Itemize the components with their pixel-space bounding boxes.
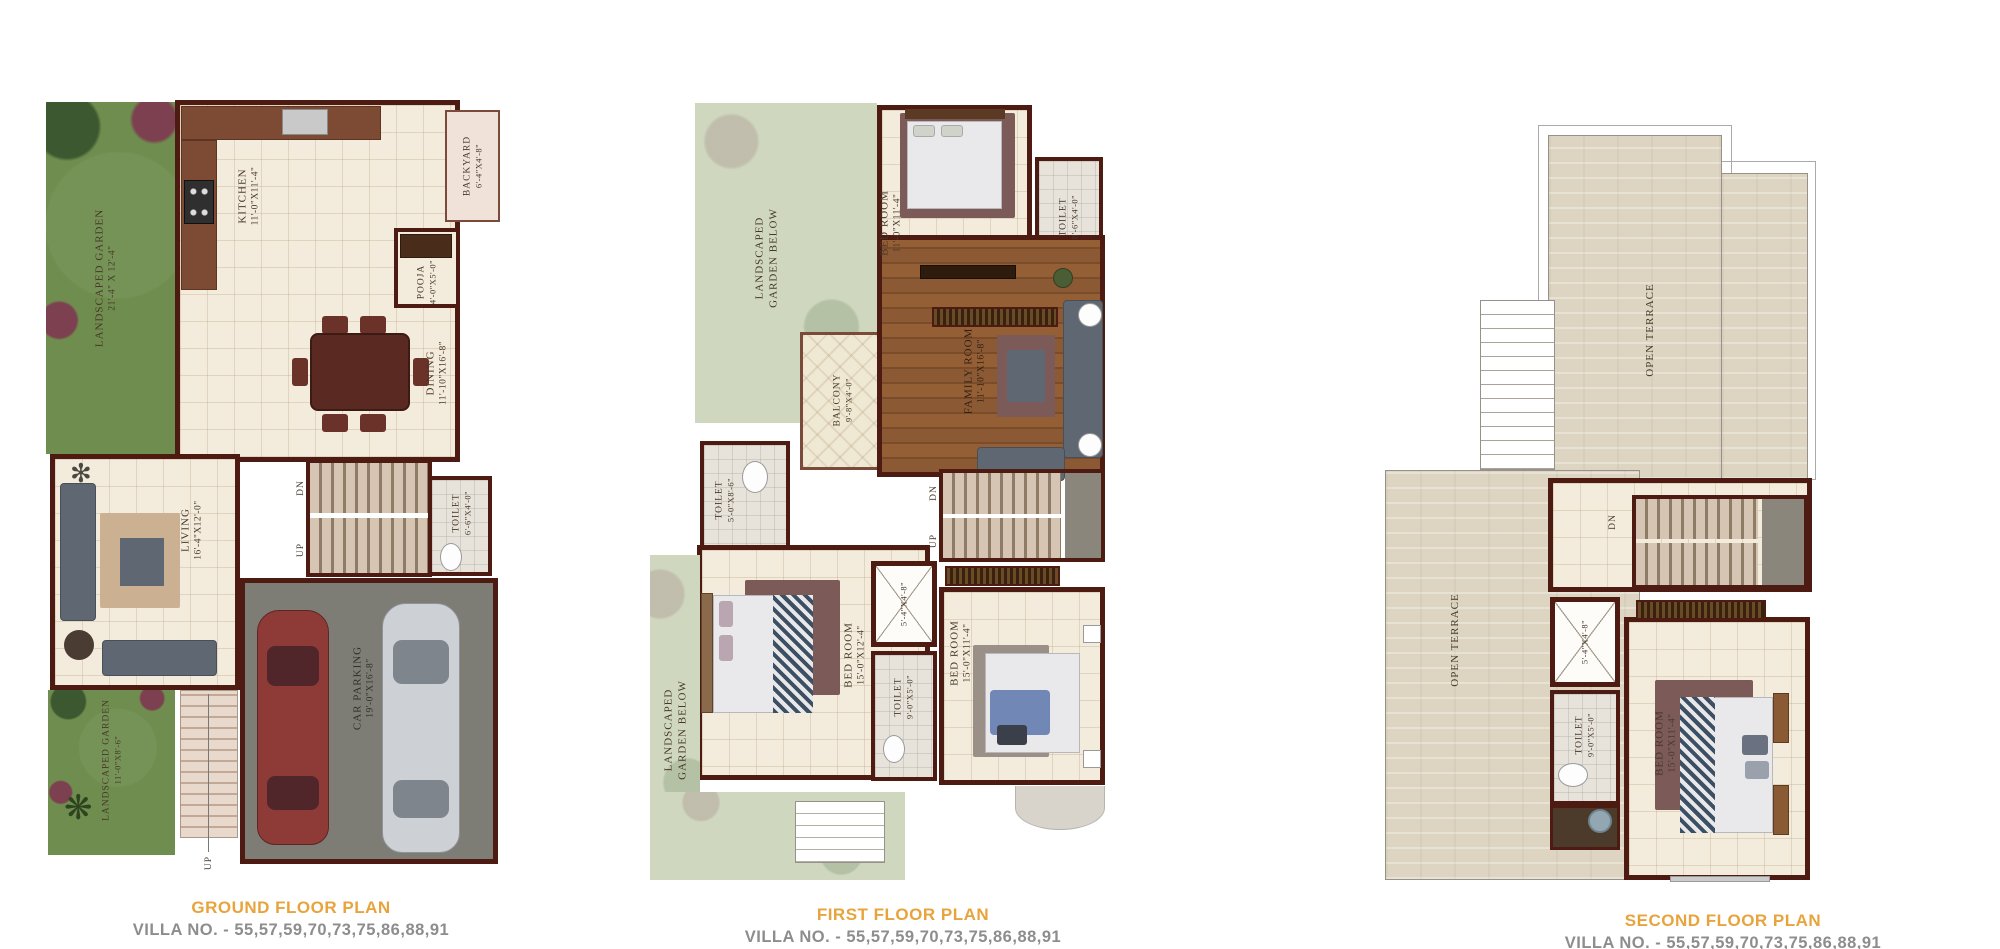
gf-kitchen-counter-top [181, 106, 381, 140]
ff-bedroom-top-label: BED ROOM11'-0"X11'-4" [878, 190, 905, 256]
gf-stove [184, 180, 214, 224]
sf-toilet-wc [1558, 763, 1588, 787]
gf-pooja-label: POOJA4'-0"X5'-0" [415, 260, 438, 304]
ff-shaft-label: 5'-4"X4'-8" [898, 582, 909, 626]
ff-garden-bottom-label: LANDSCAPEDGARDEN BELOW [662, 680, 691, 780]
gf-stairs-up-label: UP [295, 543, 307, 557]
sf-wardrobe [1636, 600, 1766, 620]
ff-round-table [1078, 303, 1102, 327]
ff-balcony-label: BALCONY9'-8"X4'-0" [831, 374, 854, 427]
gf-car-silver-windshield [393, 640, 449, 684]
gf-sofa-bottom [102, 640, 217, 676]
ff-bedroom-top-headboard [905, 109, 1005, 119]
second-floor-plan: OPEN TERRACE OPEN TERRACE DN 5'-4"X4'-8"… [1350, 95, 1820, 895]
ff-plant [1053, 268, 1073, 288]
ff-bedroom-bl-headboard [701, 593, 713, 713]
ff-bedroom-top-pillow [913, 125, 935, 137]
gf-toilet-wc [440, 543, 462, 571]
ff-bedroom-bl-blanket [773, 595, 813, 713]
ff-toilet-br-wc [883, 735, 905, 763]
ff-bedroom-br-pillow [997, 725, 1027, 745]
gf-entry-steps [180, 690, 238, 838]
gf-stairs-dn-label: DN [295, 480, 307, 496]
first-floor-plan: LANDSCAPEDGARDEN BELOW BED ROOM11'-0"X11… [645, 95, 1137, 895]
gf-car-parking-label: CAR PARKING19'-0"X16'-8" [351, 646, 378, 730]
gf-garden-top-label: LANDSCAPED GARDEN21'-4" X 12'-4" [93, 209, 120, 347]
ff-sitout-arc [1015, 786, 1105, 830]
sf-bedroom-blanket [1680, 697, 1715, 833]
ff-stairs-dn-label: DN [928, 485, 940, 501]
gf-dining-chair [292, 358, 308, 386]
sf-open-terrace-top-left [1548, 135, 1722, 480]
gf-car-red-windshield [267, 646, 319, 686]
ff-wardrobe-br [945, 566, 1060, 586]
ff-bedroom-br-side-table [1083, 750, 1101, 768]
ff-bedroom-bl-label: BED ROOM15'-0"X12'-4" [842, 622, 869, 688]
sf-shaft-label: 5'-4"X4'-8" [1579, 620, 1590, 664]
sf-villa-no: VILLA NO. - 55,57,59,70,73,75,86,88,91 [1490, 934, 1956, 949]
floorplan-sheet: LANDSCAPED GARDEN21'-4" X 12'-4" KITCHEN… [0, 0, 2000, 949]
ff-bedroom-bl-pillow [719, 601, 733, 627]
sf-bedroom-headboard [1773, 785, 1789, 835]
sf-bedroom-pillow [1742, 735, 1768, 755]
gf-entry-up-label: UP [203, 856, 215, 870]
gf-sofa-left [60, 483, 96, 621]
ff-toilet-tr-label: TOILET8'-6"X4'-0" [1057, 195, 1080, 239]
sf-window-bottom [1670, 876, 1770, 882]
ff-title-block: FIRST FLOOR PLAN VILLA NO. - 55,57,59,70… [660, 905, 1146, 947]
ff-toilet-ml-label: TOILET5'-0"X8'-6" [713, 478, 736, 522]
gf-kitchen-sink [282, 109, 328, 135]
gf-kitchen-label: KITCHEN11'-0"X11'-4" [236, 167, 263, 226]
sf-terrace-top-label: OPEN TERRACE [1643, 283, 1657, 376]
gf-dining-label: DINING11'-10"X16'-8" [424, 341, 451, 405]
ff-villa-no: VILLA NO. - 55,57,59,70,73,75,86,88,91 [660, 928, 1146, 947]
gf-entry-axis-line [208, 694, 209, 852]
gf-living-rug-center [120, 538, 164, 586]
ff-entry-steps-outline [795, 801, 885, 863]
gf-living-label: LIVING16'-4"X12'-0" [179, 500, 206, 559]
sf-open-stairs-outline [1480, 300, 1555, 470]
gf-pooja-cabinet [400, 234, 452, 258]
gf-garden-bottom-label: LANDSCAPED GARDEN11'-0"X8'-6" [100, 699, 123, 821]
sf-wash-basin [1588, 809, 1612, 833]
sf-title-block: SECOND FLOOR PLAN VILLA NO. - 55,57,59,7… [1490, 911, 1956, 949]
gf-side-table [64, 630, 94, 660]
ff-stairs-up-label: UP [928, 534, 940, 548]
gf-car-silver-rear-window [393, 780, 449, 818]
ff-round-table [1078, 433, 1102, 457]
sf-toilet-label: TOILET9'-0"X5'-0" [1573, 713, 1596, 757]
sf-stairs-dn-label: DN [1607, 514, 1619, 530]
gf-dining-table [310, 333, 410, 411]
ff-wardrobe-top [932, 307, 1058, 327]
ff-stairs-enclosure [939, 469, 1105, 562]
ff-toilet-br-label: TOILET9'-0"X5'-0" [892, 675, 915, 719]
ff-coffee-table [1007, 350, 1045, 402]
gf-backyard-label: BACKYARD6'-4"X4'-8" [461, 136, 484, 196]
ff-toilet-ml-wc [742, 461, 768, 493]
ff-bedroom-br-side-table [1083, 625, 1101, 643]
sf-open-terrace-top-right [1722, 173, 1808, 480]
ff-bedroom-br-label: BED ROOM15'-0"X11'-4" [948, 620, 975, 686]
gf-dining-chair [360, 414, 386, 432]
sf-terrace-left-label: OPEN TERRACE [1448, 593, 1462, 686]
ff-family-label: FAMILY ROOM11'-10"X16'-8" [962, 328, 989, 415]
ff-garden-top-label: LANDSCAPEDGARDEN BELOW [753, 208, 782, 308]
gf-plan-title: GROUND FLOOR PLAN [62, 898, 520, 918]
gf-title-block: GROUND FLOOR PLAN VILLA NO. - 55,57,59,7… [62, 898, 520, 940]
sf-plan-title: SECOND FLOOR PLAN [1490, 911, 1956, 931]
gf-toilet-label: TOILET6'-6"X4'-0" [450, 491, 473, 535]
sf-bedroom-headboard [1773, 693, 1789, 743]
sf-bedroom-label: BED ROOM15'-0"X11'-4" [1653, 710, 1680, 776]
gf-car-red-rear-window [267, 776, 319, 810]
gf-stairs-enclosure [306, 459, 432, 577]
ff-bedroom-top-pillow [941, 125, 963, 137]
sf-bedroom-pillow [1745, 761, 1769, 779]
gf-dining-chair [360, 316, 386, 334]
gf-palm-tree-icon: ❋ [64, 788, 93, 828]
sf-stairs-enclosure [1632, 495, 1808, 589]
gf-dining-chair [322, 316, 348, 334]
ff-tv-unit [920, 265, 1016, 279]
ground-floor-plan: LANDSCAPED GARDEN21'-4" X 12'-4" KITCHEN… [42, 88, 500, 888]
ff-plan-title: FIRST FLOOR PLAN [660, 905, 1146, 925]
gf-dining-chair [322, 414, 348, 432]
ff-bedroom-bl-pillow [719, 635, 733, 661]
gf-ceiling-fan-icon: ✻ [70, 458, 92, 489]
gf-villa-no: VILLA NO. - 55,57,59,70,73,75,86,88,91 [62, 921, 520, 940]
